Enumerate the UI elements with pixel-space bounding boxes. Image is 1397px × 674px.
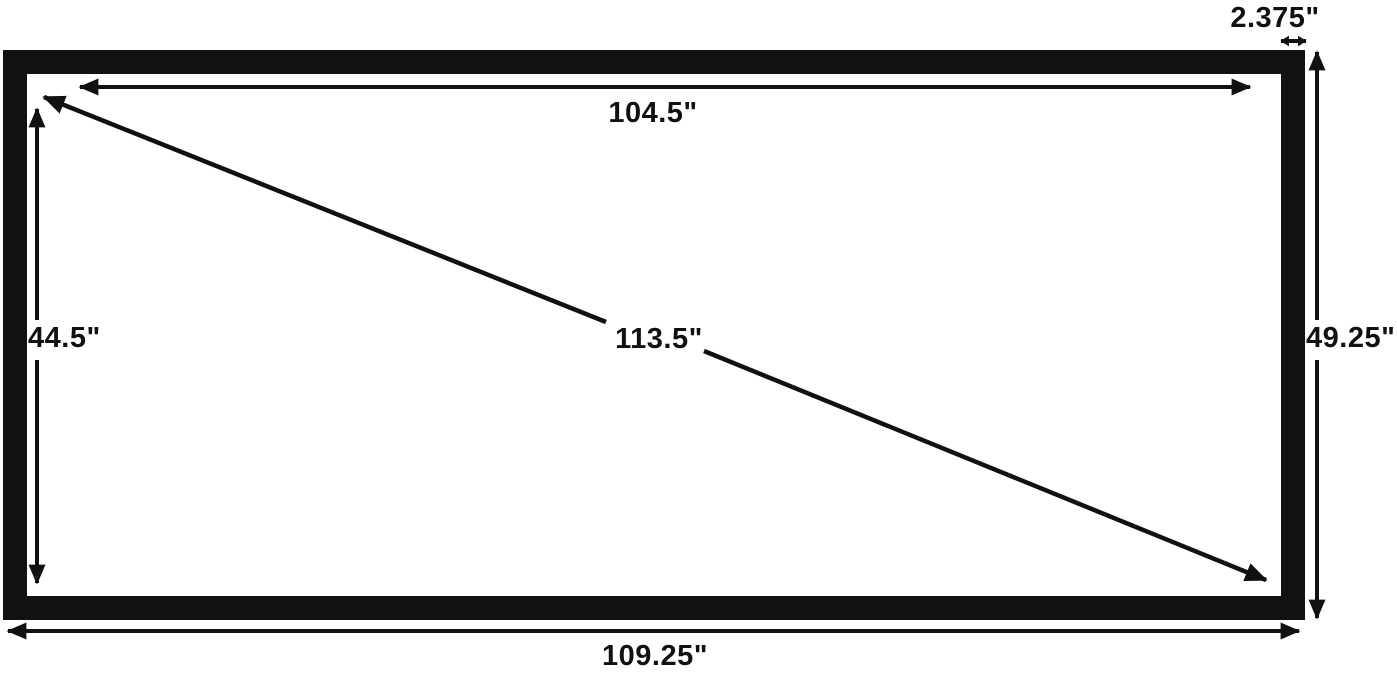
diagonal-label: 113.5" [615,325,703,354]
inner-height-label: 44.5" [28,324,101,353]
outer-width-label: 109.25" [602,642,708,671]
outer-height-label: 49.25" [1306,324,1395,353]
frame-thickness-label: 2.375" [1230,4,1319,33]
inner-width-label: 104.5" [608,99,697,128]
screen-dimension-diagram: 104.5" 44.5" 113.5" 49.25" 109.25" 2.375… [0,0,1397,674]
